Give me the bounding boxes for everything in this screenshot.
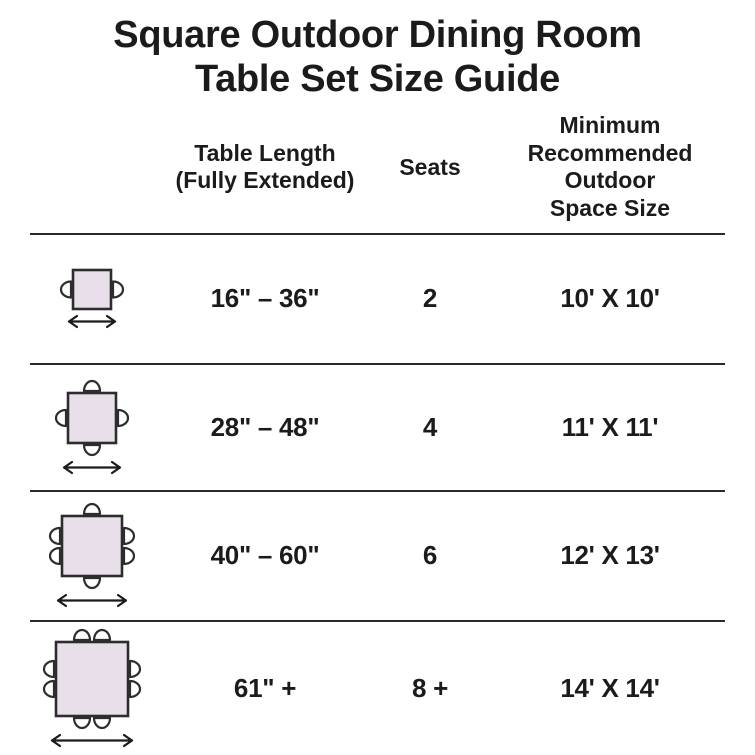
space-size-value: 10' X 10' (495, 283, 725, 314)
seats-value: 4 (365, 412, 495, 443)
table-body: 16" – 36" 2 10' X 10' 28" – 48" 4 11' X … (0, 233, 755, 755)
size-guide-page: Square Outdoor Dining Room Table Set Siz… (0, 0, 755, 755)
table-row: 28" – 48" 4 11' X 11' (30, 363, 725, 490)
seats-value: 6 (365, 540, 495, 571)
space-size-value: 11' X 11' (495, 412, 725, 443)
row-icon-cell (24, 628, 159, 749)
page-title: Square Outdoor Dining Room Table Set Siz… (0, 0, 755, 102)
column-headers: Table Length (Fully Extended) Seats Mini… (30, 102, 725, 233)
table-length-value: 40" – 60" (165, 540, 365, 571)
space-size-value: 14' X 14' (495, 673, 725, 704)
table-row: 16" – 36" 2 10' X 10' (30, 233, 725, 363)
table-2-seat-diagram-icon (59, 268, 125, 330)
table-length-value: 28" – 48" (165, 412, 365, 443)
table-row: 61" + 8 + 14' X 14' (30, 620, 725, 755)
column-header-space-size: Minimum Recommended Outdoor Space Size (495, 112, 725, 222)
space-size-value: 12' X 13' (495, 540, 725, 571)
column-header-table-length: Table Length (Fully Extended) (165, 140, 365, 195)
table-8-seat-diagram-icon (42, 628, 142, 749)
column-header-seats: Seats (365, 154, 495, 182)
table-length-value: 61" + (165, 673, 365, 704)
seats-value: 8 + (365, 673, 495, 704)
table-row: 40" – 60" 6 12' X 13' (30, 490, 725, 620)
seats-value: 2 (365, 283, 495, 314)
table-4-seat-diagram-icon (54, 379, 130, 476)
row-icon-cell (24, 379, 159, 476)
table-length-value: 16" – 36" (165, 283, 365, 314)
table-6-seat-diagram-icon (48, 502, 136, 609)
row-icon-cell (24, 502, 159, 609)
row-icon-cell (24, 268, 159, 330)
